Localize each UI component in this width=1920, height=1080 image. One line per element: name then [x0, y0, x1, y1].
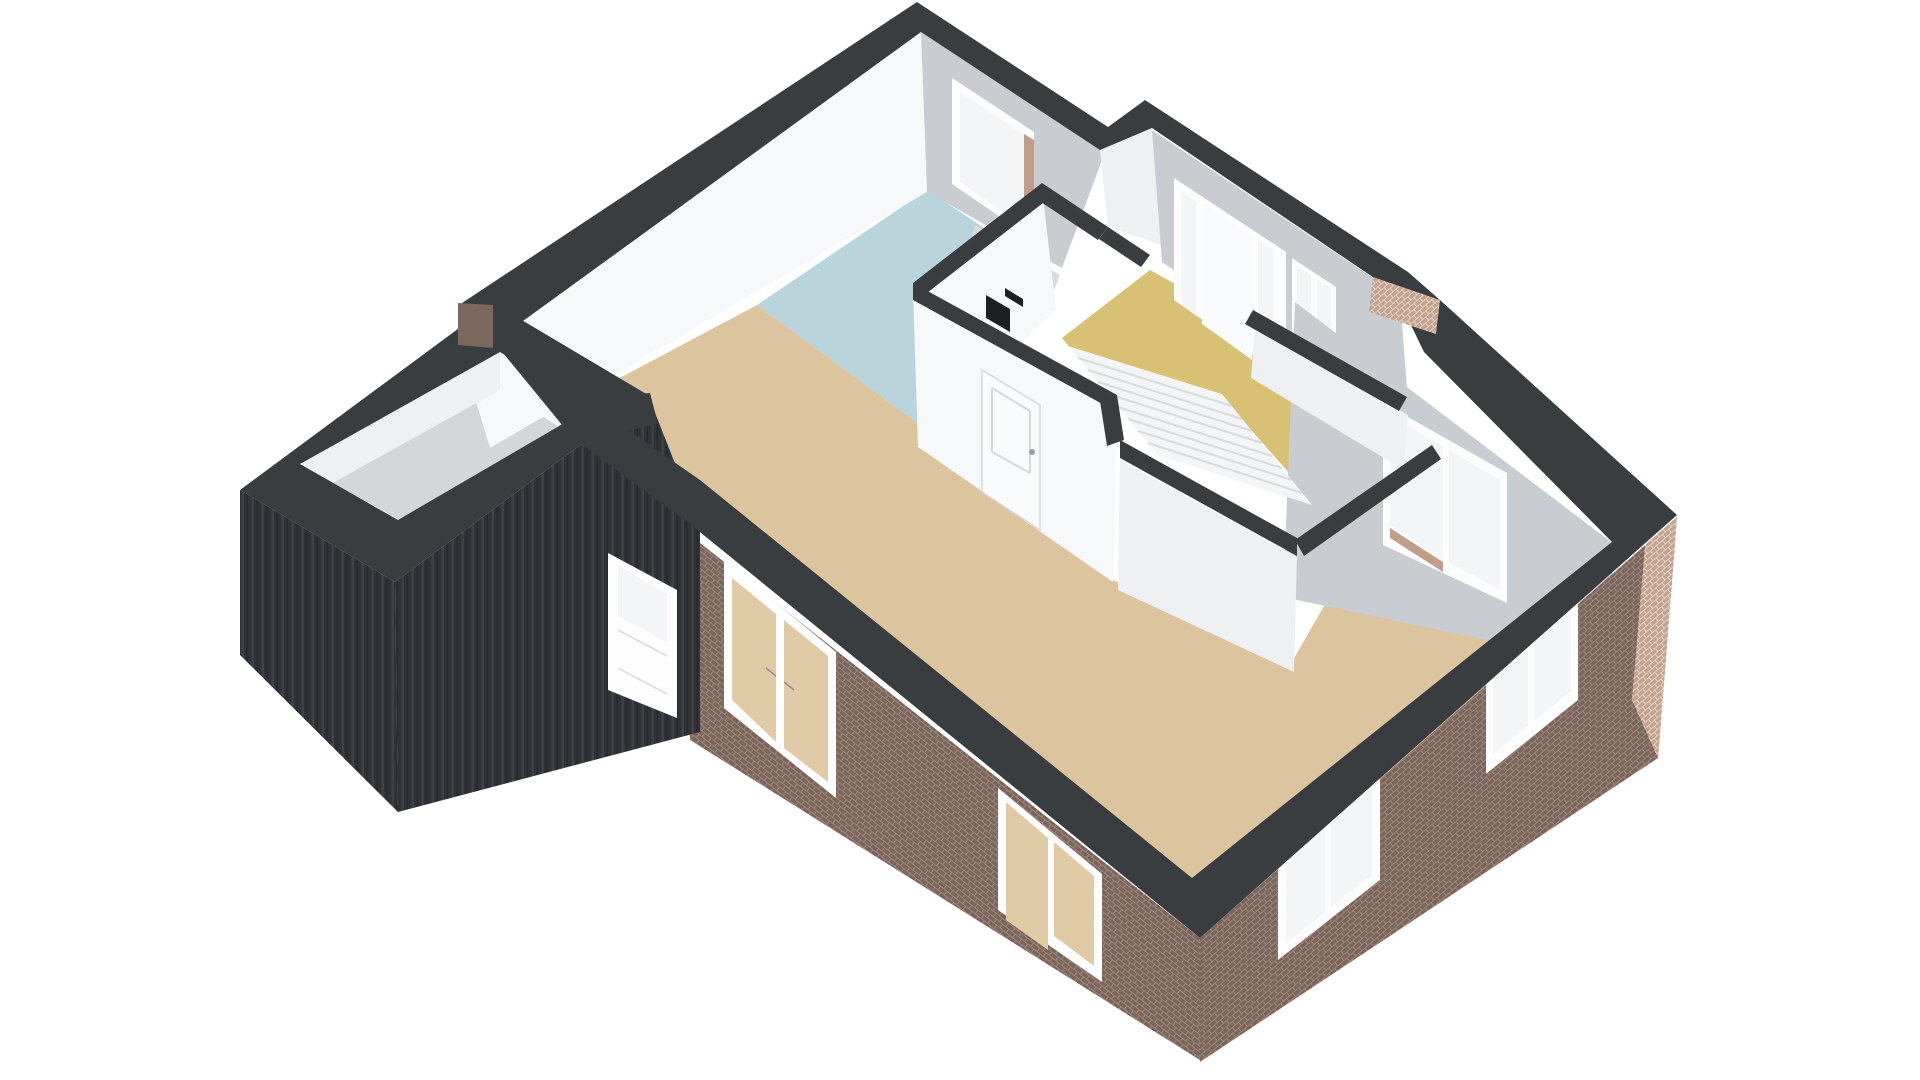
floorplan-render: [0, 0, 1920, 1080]
brick-sliver-west: [458, 303, 493, 348]
floorplan-canvas: [0, 0, 1920, 1080]
living-room-door-handle: [1029, 449, 1035, 455]
front-door-sidelight-left: [1181, 192, 1196, 316]
